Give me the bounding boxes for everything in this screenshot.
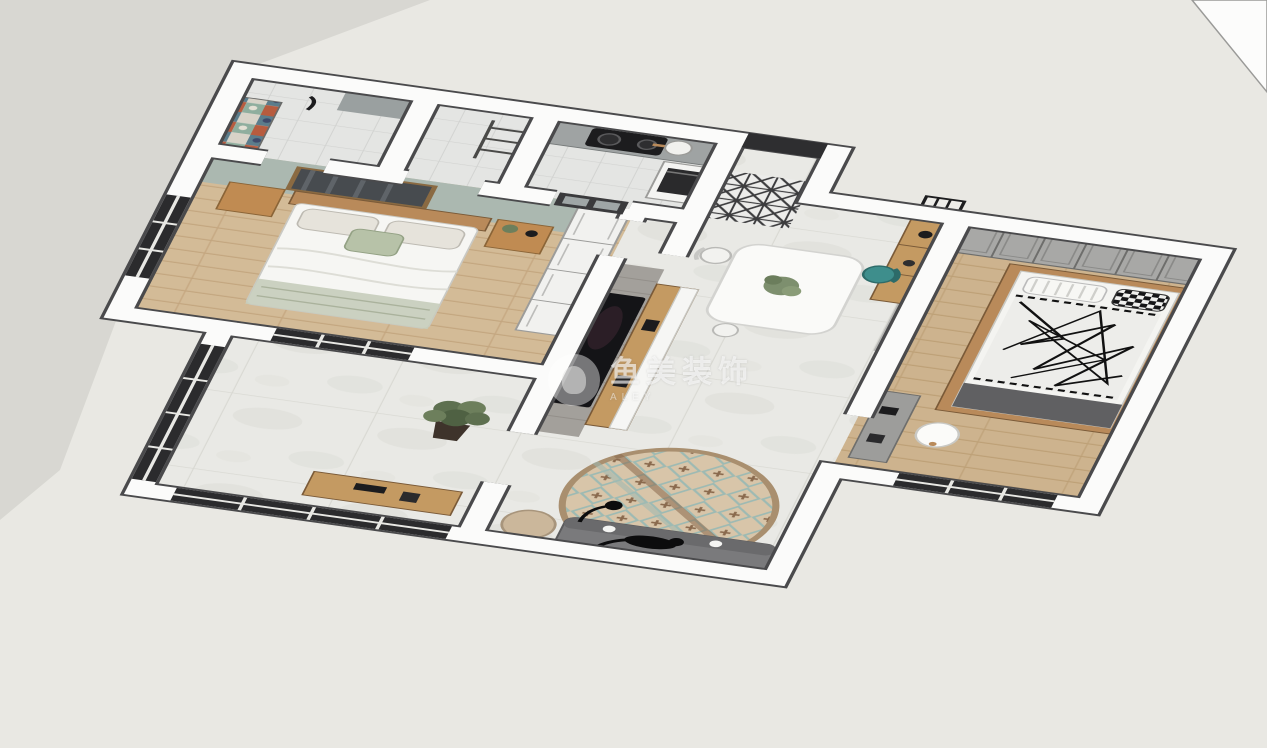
- floorplan-3d-render: 鱼美装饰 ALEY: [0, 0, 1267, 748]
- floorplan-canvas: [0, 0, 1267, 748]
